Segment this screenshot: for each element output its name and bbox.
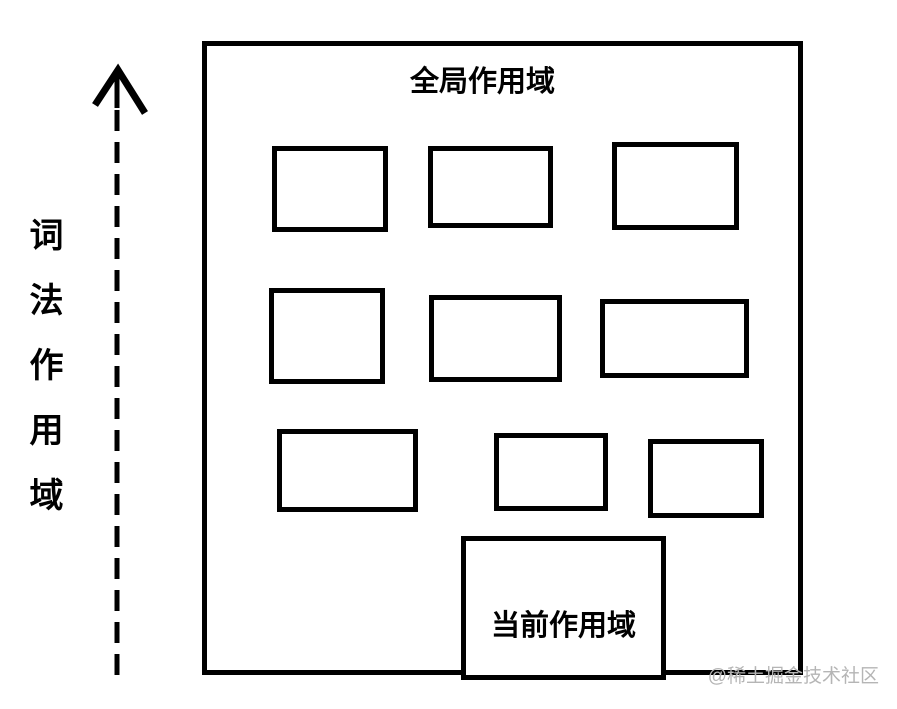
current-scope-label: 当前作用域 xyxy=(491,612,636,641)
current-scope-box: 当前作用域 xyxy=(461,536,666,680)
scope-box xyxy=(494,433,608,511)
lexical-scope-diagram: 词法作用域 全局作用域 当前作用域 @稀土掘金技术社区 xyxy=(0,0,897,709)
global-scope-title: 全局作用域 xyxy=(207,68,758,97)
scope-box xyxy=(428,146,553,228)
scope-box xyxy=(612,142,739,230)
scope-box xyxy=(600,299,749,378)
watermark: @稀土掘金技术社区 xyxy=(708,666,879,689)
scope-box xyxy=(277,429,418,512)
lexical-scope-axis-label: 词法作用域 xyxy=(26,217,60,542)
scope-box xyxy=(269,288,385,384)
global-scope-box: 全局作用域 当前作用域 xyxy=(202,41,803,675)
scope-box xyxy=(648,439,764,518)
scope-box xyxy=(429,295,562,382)
arrow-head-icon xyxy=(95,70,145,113)
scope-box xyxy=(272,146,388,232)
